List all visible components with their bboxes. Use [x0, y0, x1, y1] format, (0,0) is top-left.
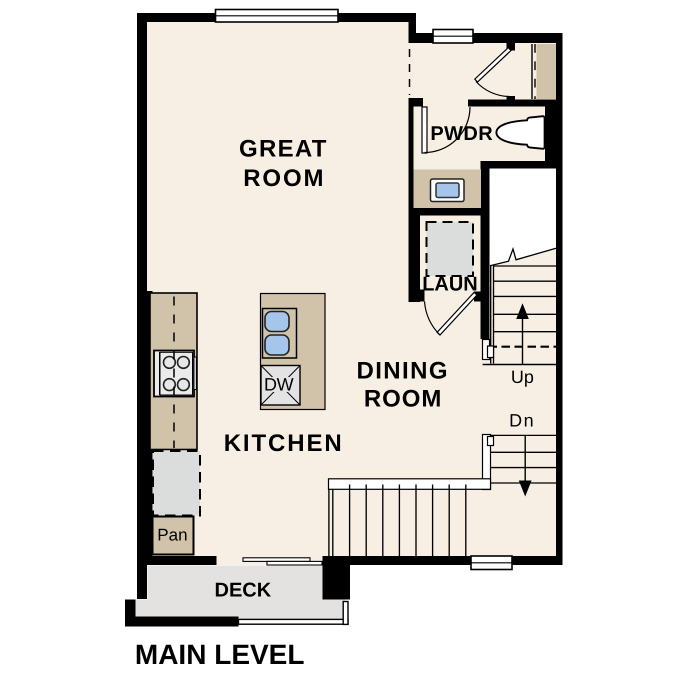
svg-text:Pan: Pan	[157, 526, 187, 545]
svg-text:DINING: DINING	[357, 357, 449, 384]
svg-text:Up: Up	[511, 367, 534, 387]
svg-text:PWDR: PWDR	[430, 123, 493, 145]
svg-text:KITCHEN: KITCHEN	[224, 430, 344, 457]
svg-text:DECK: DECK	[215, 580, 272, 602]
svg-text:GREAT: GREAT	[239, 135, 328, 162]
svg-text:ROOM: ROOM	[364, 386, 442, 413]
svg-text:Dn: Dn	[509, 410, 535, 430]
svg-text:ROOM: ROOM	[243, 165, 325, 192]
svg-text:MAIN LEVEL: MAIN LEVEL	[135, 639, 305, 670]
svg-text:DW: DW	[264, 375, 294, 395]
svg-text:LAUN: LAUN	[422, 274, 478, 296]
